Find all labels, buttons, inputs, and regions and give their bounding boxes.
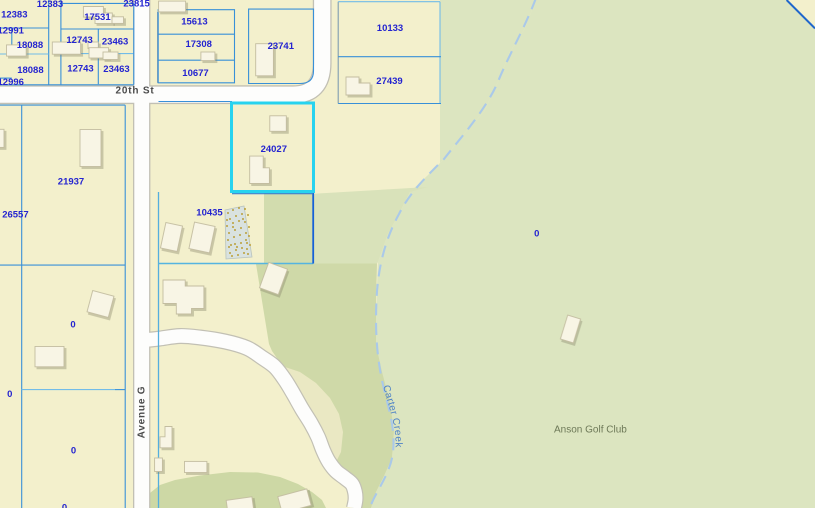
svg-text:26557: 26557: [2, 210, 28, 221]
svg-text:0: 0: [62, 502, 67, 508]
svg-text:17308: 17308: [185, 39, 211, 50]
svg-text:12383: 12383: [1, 10, 27, 21]
svg-text:23741: 23741: [268, 41, 295, 52]
svg-text:Anson Golf Club: Anson Golf Club: [554, 425, 627, 436]
svg-text:0: 0: [70, 320, 75, 331]
svg-text:21937: 21937: [58, 177, 84, 188]
svg-text:18088: 18088: [17, 65, 43, 76]
svg-text:12996: 12996: [0, 77, 24, 88]
svg-text:10133: 10133: [377, 23, 403, 34]
svg-text:10677: 10677: [182, 68, 208, 79]
svg-text:10435: 10435: [196, 208, 223, 219]
svg-text:0: 0: [7, 389, 12, 400]
svg-text:0: 0: [71, 445, 76, 456]
svg-text:23463: 23463: [102, 36, 128, 47]
svg-text:0: 0: [534, 229, 539, 240]
svg-text:20th St: 20th St: [116, 86, 155, 97]
svg-text:Avenue G: Avenue G: [137, 386, 148, 439]
svg-text:12991: 12991: [0, 26, 25, 37]
svg-text:17531: 17531: [84, 12, 111, 23]
svg-text:18088: 18088: [17, 40, 43, 51]
svg-text:12743: 12743: [66, 35, 92, 46]
svg-text:12383: 12383: [37, 0, 63, 10]
svg-text:23463: 23463: [103, 64, 129, 75]
svg-text:24027: 24027: [261, 144, 287, 155]
svg-text:12743: 12743: [67, 63, 93, 74]
svg-text:27439: 27439: [376, 76, 402, 87]
svg-text:23815: 23815: [123, 0, 150, 10]
svg-text:15613: 15613: [181, 17, 207, 28]
